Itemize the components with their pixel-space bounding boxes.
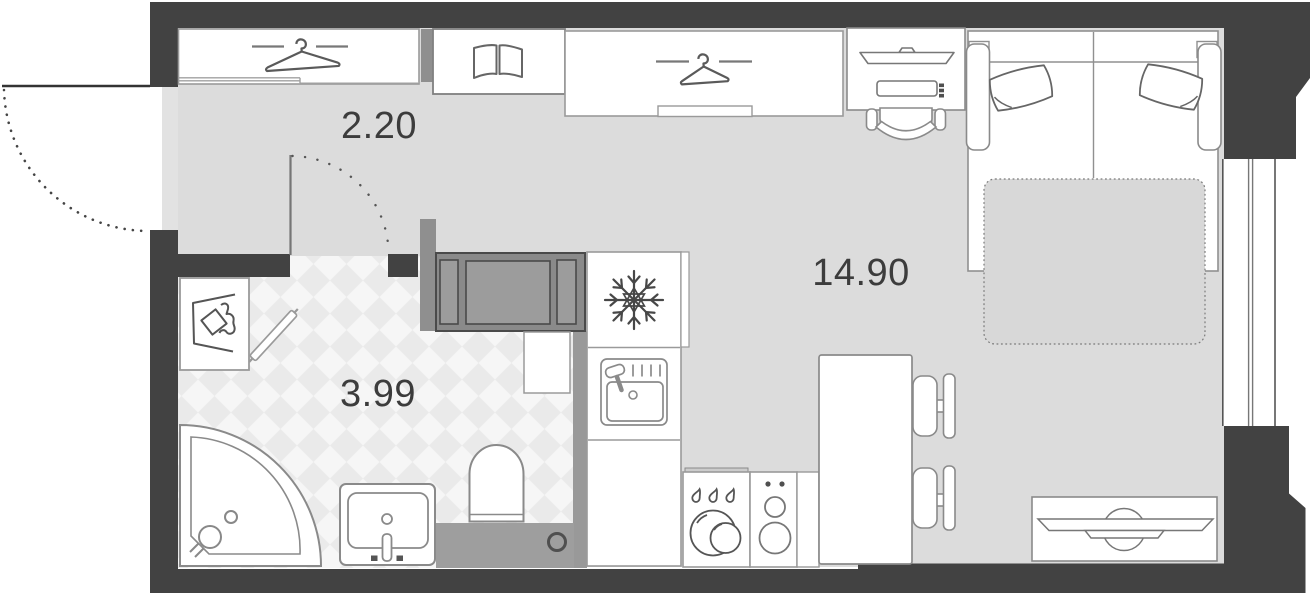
svg-text:3.99: 3.99 [340, 373, 416, 415]
svg-text:2.20: 2.20 [341, 105, 417, 147]
svg-text:14.90: 14.90 [812, 252, 910, 294]
